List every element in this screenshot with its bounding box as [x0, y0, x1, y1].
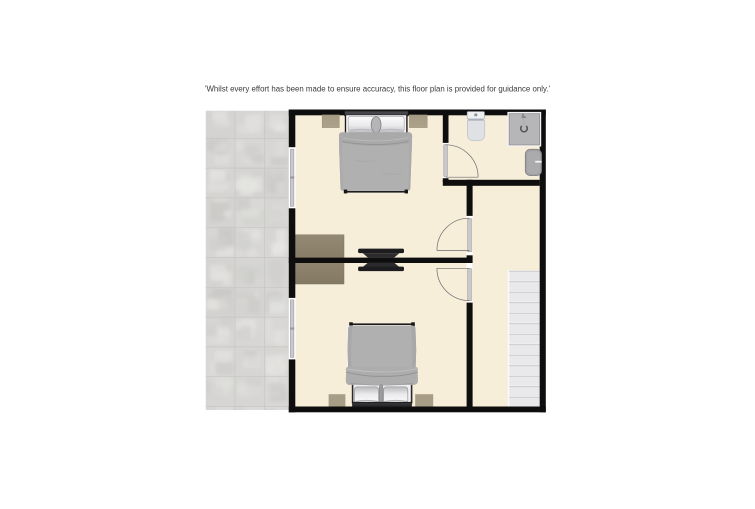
svg-text:'Whilst every effort has been: 'Whilst every effort has been made to en… — [205, 84, 550, 93]
